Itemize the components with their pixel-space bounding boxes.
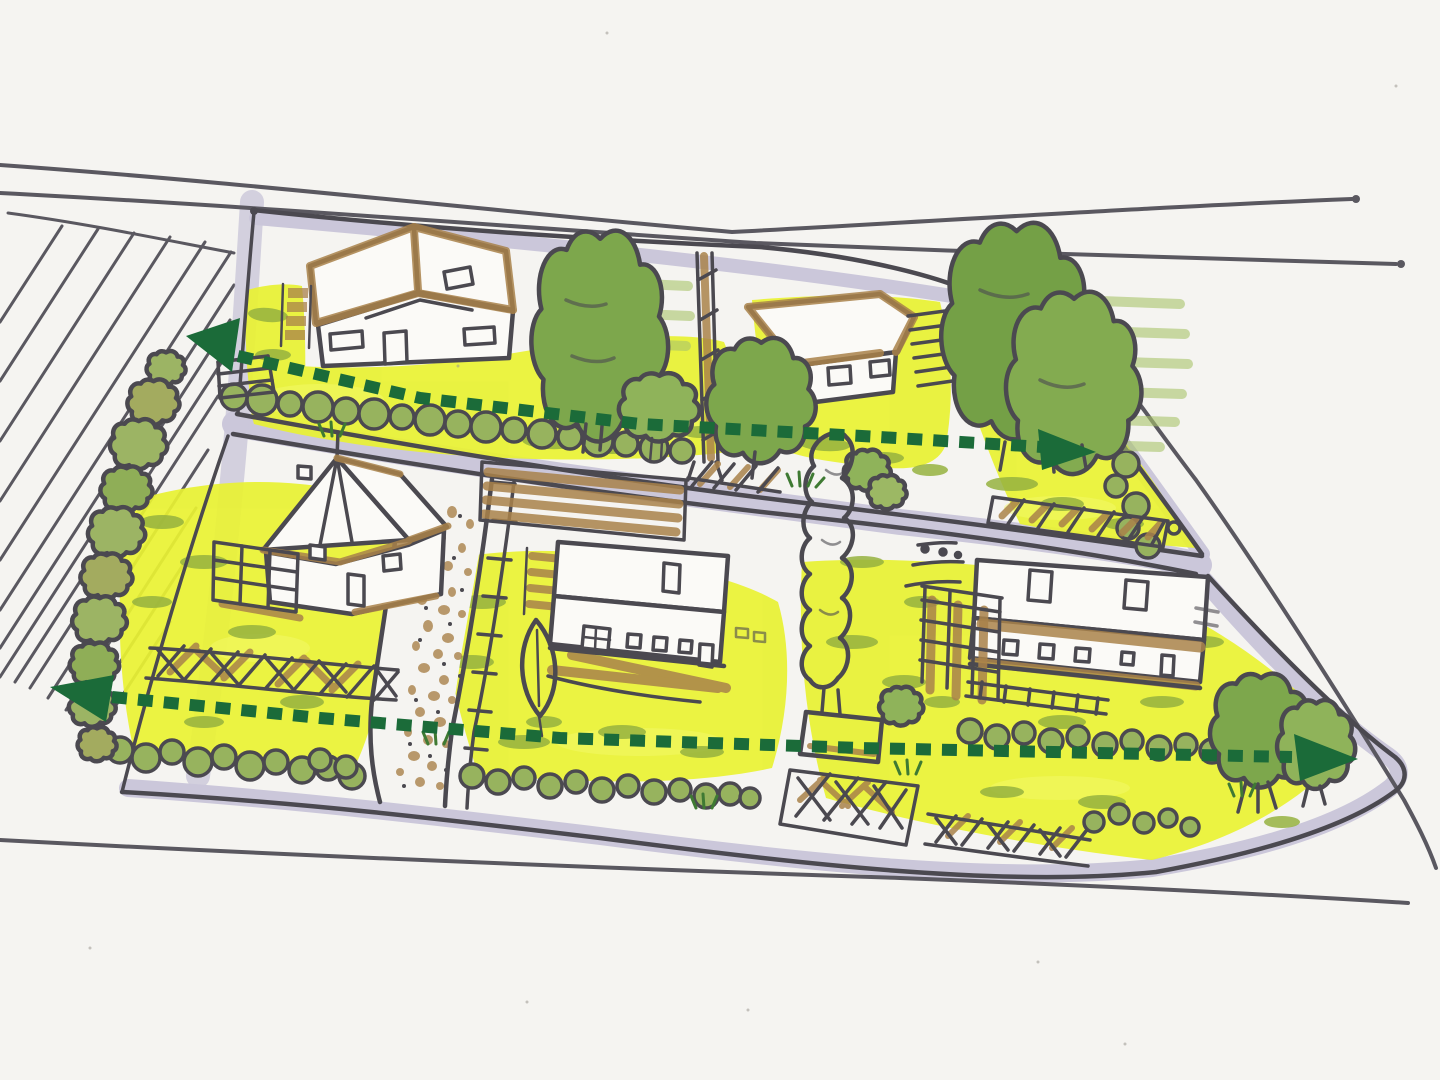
sketch-page: Hand-drawn marker sketch: neighborhood b… xyxy=(0,0,1440,1080)
window xyxy=(383,554,401,571)
site-plan-sketch: Hand-drawn marker sketch: neighborhood b… xyxy=(0,0,1440,1080)
window xyxy=(1124,580,1148,610)
door xyxy=(348,574,364,606)
window xyxy=(828,366,851,385)
window xyxy=(310,545,325,560)
line-end-dot xyxy=(1352,195,1360,203)
window xyxy=(663,563,680,593)
line-end-dot xyxy=(1397,260,1405,268)
dormer-window xyxy=(444,267,473,289)
window xyxy=(464,327,495,345)
attic-window xyxy=(298,466,311,479)
window xyxy=(330,331,363,350)
tree-small-lower-mid xyxy=(879,687,923,726)
window xyxy=(870,360,890,377)
window xyxy=(1028,570,1052,602)
door xyxy=(1161,655,1174,676)
door xyxy=(384,331,407,364)
